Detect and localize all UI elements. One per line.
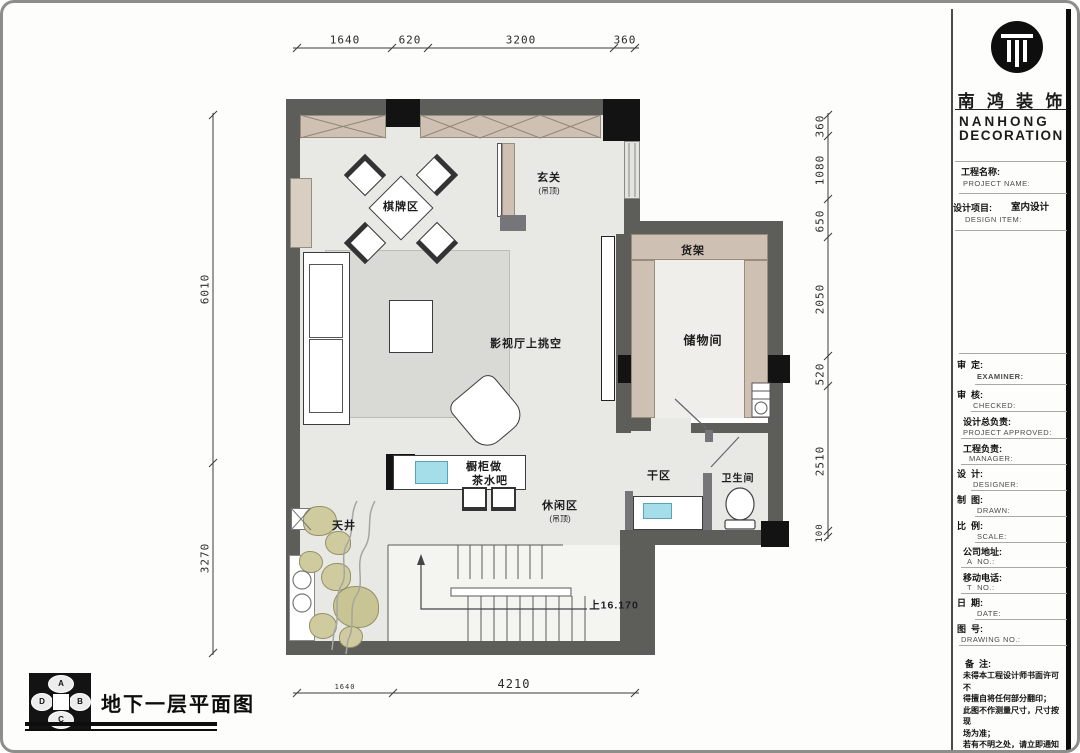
label-shelf: 货架	[681, 242, 705, 258]
compass-d: D	[31, 693, 53, 711]
field-drawingno-cn: 图 号:	[957, 622, 983, 635]
label-bathroom: 卫生间	[722, 470, 755, 485]
wall-top	[286, 99, 640, 115]
remark-line: 若有不明之处，请立即通知设	[963, 739, 1065, 753]
entry-partition-wall	[500, 215, 526, 231]
dim-top-1: 1640	[330, 34, 361, 47]
coffee-table	[389, 300, 433, 353]
cabinet-left-wall	[290, 178, 312, 248]
field-checked-en: CHECKED:	[973, 401, 1016, 410]
logo-bar-2	[1015, 40, 1019, 67]
tb-line	[955, 161, 1067, 162]
field-design-en: DESIGN ITEM:	[965, 215, 1022, 224]
field-approved-en: PROJECT APPROVED:	[963, 428, 1052, 437]
dim-right-1: 360	[814, 115, 827, 138]
tb-line	[961, 593, 1067, 594]
tb-line	[959, 353, 1067, 354]
bar-stool-2	[491, 487, 516, 511]
field-address-en: A NO.:	[967, 557, 995, 566]
compass-b: B	[69, 693, 91, 711]
wall-dry-bath-partition	[703, 473, 712, 530]
column-top-right	[603, 99, 640, 141]
tb-line	[971, 411, 1067, 412]
compass-center	[52, 693, 70, 711]
field-examiner-cn: 审 定:	[957, 358, 983, 371]
label-media-void: 影视厅上挑空	[490, 335, 562, 351]
dim-right-6: 2510	[814, 446, 827, 477]
label-leisure: 休闲区	[542, 497, 578, 513]
wall-storage-top	[624, 221, 783, 234]
wall-storage-bottom-left	[625, 416, 651, 431]
plant-6	[309, 613, 337, 639]
titleblock-divider	[951, 9, 953, 750]
field-design-value: 室内设计	[1011, 199, 1049, 213]
field-scale-en: SCALE:	[977, 532, 1007, 541]
dim-right-4: 2050	[814, 284, 827, 315]
field-approved-cn: 设计总负责:	[963, 415, 1011, 428]
caption-underline-thin	[25, 729, 217, 731]
storage-shelf-right	[744, 260, 768, 418]
column-top-1	[386, 99, 420, 127]
wardrobe-top-1	[300, 115, 386, 138]
dry-area-basin	[643, 503, 672, 519]
plant-3	[299, 551, 323, 573]
remark-line: 得擅自将任何部分翻印；	[963, 693, 1065, 705]
column-bath-corner	[761, 521, 789, 547]
label-leisure-sub: (吊顶)	[549, 514, 570, 525]
tb-line	[975, 516, 1067, 517]
teabar-sink	[415, 461, 448, 484]
field-remark-cn: 备 注:	[965, 657, 991, 670]
tb-line	[975, 619, 1067, 620]
dim-top-4: 360	[614, 34, 637, 47]
label-cabinet-line2: 茶水吧	[472, 472, 508, 488]
field-scale-cn: 比 例:	[957, 519, 983, 532]
field-drawn-cn: 制 图:	[957, 493, 983, 506]
entry-shoe-cabinet	[502, 143, 515, 217]
wall-corner-block	[620, 543, 655, 641]
storage-door-gap	[651, 418, 691, 433]
remark-notes: 未得本工程设计师书面许可不 得擅自将任何部分翻印； 此图不作测量尺寸，尺寸按现 …	[963, 670, 1065, 753]
logo-bar-3	[1023, 40, 1027, 62]
dim-top-3: 3200	[506, 34, 537, 47]
wall-storage-right	[768, 221, 783, 545]
tb-line	[975, 542, 1067, 543]
compass-c: C	[48, 711, 74, 729]
tb-line	[971, 490, 1067, 491]
drawing-sheet: 棋牌区 玄关 (吊顶) 货架 储物间 影视厅上挑空 橱柜做 茶水吧 干区 卫生间…	[0, 0, 1080, 753]
dim-left-2: 3270	[199, 543, 212, 574]
field-design-cn: 设计项目:	[953, 201, 992, 214]
tb-line	[959, 193, 1067, 194]
label-courtyard: 天井	[332, 517, 356, 533]
sofa-cushion-1	[309, 264, 343, 338]
tb-line	[959, 645, 1067, 646]
dim-left-1: 6010	[199, 274, 212, 305]
field-designer-cn: 设 计:	[957, 467, 983, 480]
remark-line: 未得本工程设计师书面许可不	[963, 670, 1065, 693]
wall-dry-area-left	[625, 491, 633, 530]
remark-line: 此图不作测量尺寸，尺寸按现	[963, 705, 1065, 728]
tb-line	[955, 230, 1067, 231]
dim-right-3: 650	[814, 210, 827, 233]
caption-underline-thick	[25, 722, 217, 726]
stair-zone	[388, 545, 625, 641]
sofa-cushion-2	[309, 339, 343, 413]
field-date-en: DATE:	[977, 609, 1001, 618]
storage-shelf-left	[631, 260, 655, 418]
brand-name-en-1: NANHONG	[959, 114, 1050, 129]
logo-bar-top	[1001, 34, 1033, 38]
tb-line	[961, 438, 1067, 439]
field-project-cn: 工程名称:	[961, 165, 1000, 178]
label-storage: 储物间	[683, 332, 722, 349]
plant-5	[333, 586, 379, 628]
wall-storage-bottom-right	[691, 423, 768, 433]
plant-2	[325, 531, 351, 555]
compass-a: A	[48, 675, 74, 693]
label-stair-note: 上16.170	[589, 598, 639, 613]
label-entry-sub: (吊顶)	[538, 186, 559, 197]
dim-top-2: 620	[399, 34, 422, 47]
field-drawn-en: DRAWN:	[977, 506, 1010, 515]
wardrobe-top-2	[420, 115, 601, 138]
field-project-en: PROJECT NAME:	[963, 179, 1030, 188]
entry-window	[624, 141, 640, 199]
field-date-cn: 日 期:	[957, 596, 983, 609]
sheet-right-bar	[1066, 9, 1071, 750]
field-designer-en: DESIGNER:	[973, 480, 1019, 489]
bar-stool-1	[462, 487, 487, 511]
label-dry-area: 干区	[647, 467, 671, 483]
remark-line: 场为准；	[963, 728, 1065, 740]
brand-logo-icon	[991, 21, 1043, 73]
dim-right-5: 520	[814, 363, 827, 386]
field-drawingno-en: DRAWING NO.:	[961, 635, 1020, 644]
dim-bottom-1: 1640	[335, 683, 356, 691]
storage-tall-door-panel	[601, 236, 615, 401]
dim-bottom-2: 4210	[498, 677, 531, 691]
brand-rule	[955, 109, 1067, 110]
tb-line	[975, 384, 1067, 385]
label-entry: 玄关	[537, 169, 561, 185]
wall-storage-left	[616, 234, 631, 433]
field-examiner-en: EXAMINER:	[977, 372, 1024, 381]
logo-bar-1	[1007, 40, 1011, 62]
wall-bath-door-stub	[705, 430, 713, 442]
tb-line	[961, 567, 1067, 568]
dim-right-7: 100	[815, 523, 825, 542]
label-card-area: 棋牌区	[383, 198, 419, 214]
field-checked-cn: 审 核:	[957, 388, 983, 401]
dim-right-2: 1080	[814, 155, 827, 186]
brand-name-en-2: DECORATION	[959, 128, 1064, 143]
tb-line	[961, 464, 1067, 465]
drawing-caption: 地下一层平面图	[101, 688, 255, 717]
field-manager-en: MANAGER:	[969, 454, 1013, 463]
field-phone-en: T NO.:	[967, 583, 995, 592]
